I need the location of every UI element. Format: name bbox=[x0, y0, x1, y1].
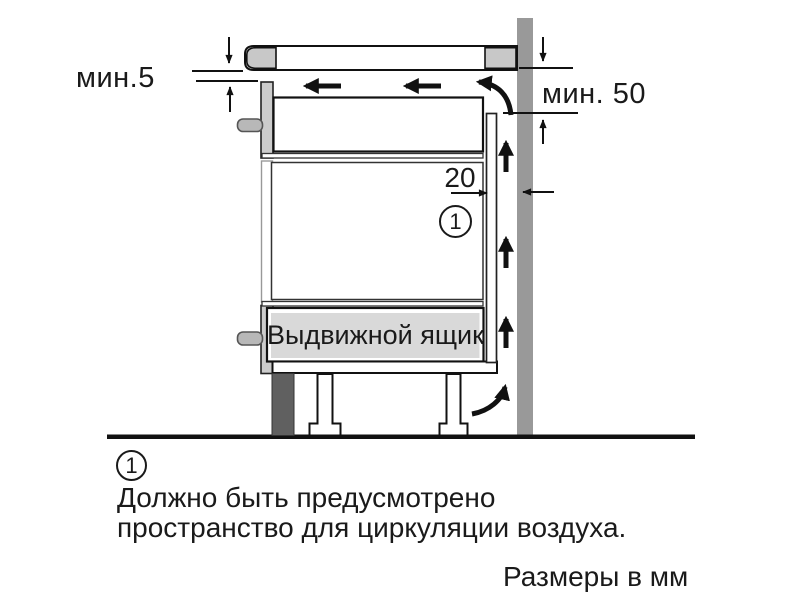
cabinet-leg-left bbox=[310, 374, 341, 436]
installation-diagram: мин.5 мин. 50 20 1 Выдвижной ящик 1 Долж… bbox=[0, 0, 800, 600]
callout-1-number: 1 bbox=[449, 209, 461, 235]
shelf-board-lower bbox=[262, 302, 483, 307]
dim-label-min5: мин.5 bbox=[76, 62, 155, 95]
shelf-board-upper bbox=[262, 154, 483, 159]
callout-1-badge: 1 bbox=[439, 205, 472, 238]
cooktop-left-trim bbox=[247, 48, 276, 69]
wall bbox=[517, 18, 533, 435]
cooktop bbox=[245, 46, 517, 70]
airflow-arrow-curved-bottom bbox=[472, 387, 505, 414]
note-callout-number: 1 bbox=[125, 453, 137, 479]
floor-line bbox=[107, 435, 695, 440]
footnote-line-2: пространство для циркуляции воздуха. bbox=[117, 513, 626, 543]
footnote-line-1: Должно быть предусмотрено bbox=[117, 483, 626, 513]
dim-label-rear-gap: 20 bbox=[441, 162, 479, 194]
units-caption: Размеры в мм bbox=[503, 561, 688, 593]
note-callout-badge: 1 bbox=[116, 450, 147, 481]
handle-knob-top bbox=[238, 119, 263, 132]
cooktop-right-trim bbox=[485, 48, 516, 69]
cabinet-front-panel-upper bbox=[261, 82, 273, 158]
upper-compartment bbox=[274, 98, 484, 152]
cabinet-leg-right bbox=[440, 374, 468, 436]
handle-knob-bottom bbox=[238, 332, 263, 345]
plinth-panel bbox=[272, 374, 294, 436]
cabinet-back-panel bbox=[487, 114, 497, 363]
drawer-label: Выдвижной ящик bbox=[268, 309, 483, 361]
dim-label-min50: мин. 50 bbox=[542, 78, 646, 111]
footnote-text: Должно быть предусмотрено пространство д… bbox=[117, 483, 626, 542]
cabinet-bottom-panel bbox=[273, 362, 498, 374]
